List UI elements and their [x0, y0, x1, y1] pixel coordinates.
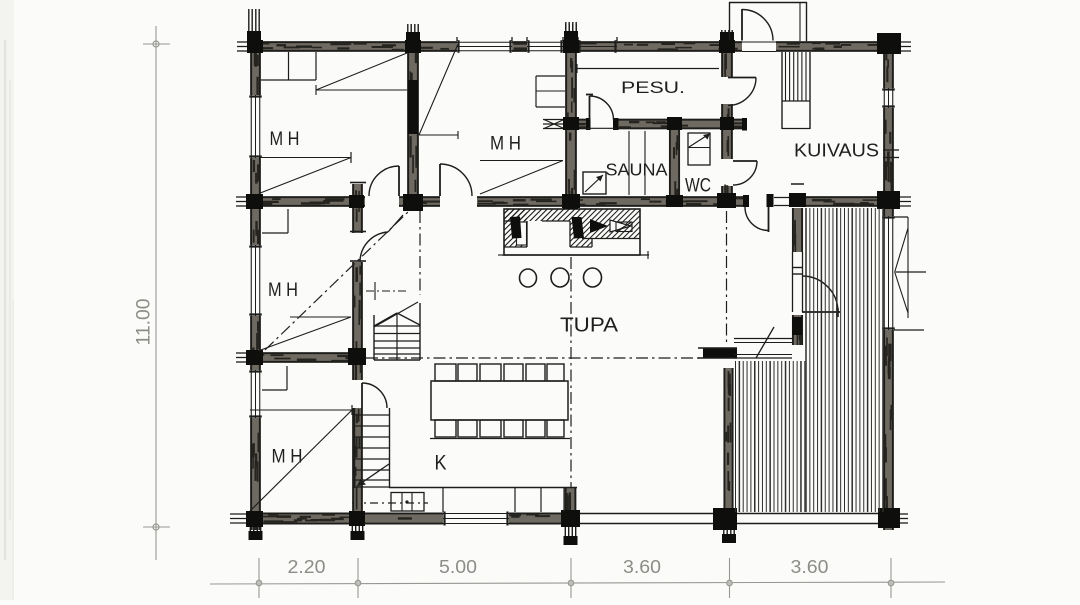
svg-text:TUPA: TUPA [560, 315, 619, 337]
svg-text:PESU.: PESU. [621, 79, 685, 97]
svg-text:3.60: 3.60 [623, 557, 661, 577]
svg-text:SAUNA: SAUNA [606, 160, 668, 180]
svg-text:M H: M H [490, 134, 521, 155]
svg-text:M H: M H [272, 447, 303, 468]
svg-text:2.20: 2.20 [288, 557, 326, 577]
svg-text:M H: M H [270, 129, 300, 150]
svg-text:11.00: 11.00 [134, 299, 155, 346]
svg-text:WC: WC [685, 176, 711, 197]
svg-text:5.00: 5.00 [439, 557, 477, 577]
svg-text:K: K [435, 452, 447, 475]
svg-text:KUIVAUS: KUIVAUS [794, 141, 879, 161]
svg-text:3.60: 3.60 [791, 557, 829, 577]
svg-text:M H: M H [268, 280, 298, 301]
